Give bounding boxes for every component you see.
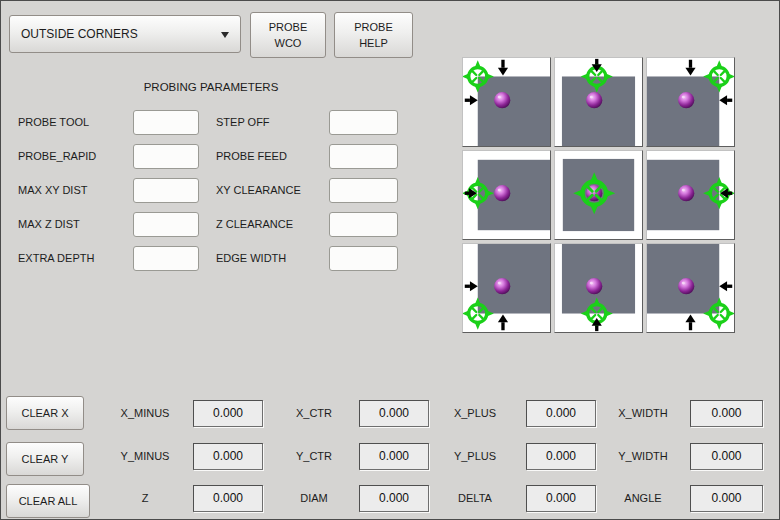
edge-width-input[interactable]: [329, 246, 398, 271]
x-width-label: X_WIDTH: [607, 400, 679, 427]
probe-tool-input[interactable]: [133, 110, 199, 135]
y-width-label: Y_WIDTH: [607, 443, 679, 470]
param-row-4: MAX Z DIST Z CLEARANCE: [1, 212, 431, 237]
probe-position-top-right-corner: [646, 57, 735, 147]
result-row-z: Z 0.000 DIAM 0.000 DELTA 0.000 ANGLE 0.0…: [1, 485, 780, 512]
step-off-label: STEP OFF: [216, 110, 270, 135]
workpiece-square: [647, 76, 719, 146]
x-plus-label: X_PLUS: [439, 400, 511, 427]
max-z-dist-input[interactable]: [133, 212, 199, 237]
step-off-input[interactable]: [329, 110, 398, 135]
probe-direction-arrow-icon: [719, 281, 732, 291]
probe-direction-arrow-icon: [592, 318, 602, 331]
diam-value: 0.000: [359, 485, 429, 512]
probe-feed-input[interactable]: [329, 144, 398, 169]
x-width-value: 0.000: [690, 400, 763, 427]
param-row-5: EXTRA DEPTH EDGE WIDTH: [1, 246, 431, 271]
probe-direction-arrow-icon: [465, 95, 478, 105]
extra-depth-input[interactable]: [133, 246, 199, 271]
probe-mode-dropdown-value: OUTSIDE CORNERS: [21, 27, 138, 41]
probe-screen-window: OUTSIDE CORNERS PROBE WCO PROBE HELP PRO…: [0, 0, 780, 520]
delta-value: 0.000: [526, 485, 596, 512]
probe-ball-icon: [678, 185, 694, 201]
edge-width-label: EDGE WIDTH: [216, 246, 286, 271]
diam-label: DIAM: [278, 485, 350, 512]
xy-clearance-label: XY CLEARANCE: [216, 178, 301, 203]
probe-direction-arrow-icon: [498, 60, 508, 76]
extra-depth-label: EXTRA DEPTH: [18, 246, 94, 271]
probe-position-bottom-right-corner: [646, 243, 735, 333]
workpiece-square: [478, 244, 550, 314]
y-ctr-label: Y_CTR: [278, 443, 350, 470]
y-plus-label: Y_PLUS: [439, 443, 511, 470]
probe-help-button-label-line2: HELP: [359, 35, 388, 52]
probe-help-button-label-line1: PROBE: [354, 19, 393, 36]
y-minus-value: 0.000: [193, 443, 263, 470]
max-xy-dist-label: MAX XY DIST: [18, 178, 87, 203]
workpiece-square: [478, 76, 550, 146]
y-minus-label: Y_MINUS: [109, 443, 181, 470]
param-row-1: PROBE TOOL STEP OFF: [1, 110, 431, 135]
probe-feed-label: PROBE FEED: [216, 144, 287, 169]
probe-wco-button-label-line2: WCO: [275, 35, 302, 52]
probe-direction-arrow-icon: [685, 314, 695, 330]
y-ctr-value: 0.000: [359, 443, 429, 470]
probe-mode-dropdown[interactable]: OUTSIDE CORNERS: [9, 15, 241, 53]
param-row-3: MAX XY DIST XY CLEARANCE: [1, 178, 431, 203]
x-ctr-value: 0.000: [359, 400, 429, 427]
probe-ball-icon: [678, 278, 694, 294]
y-width-value: 0.000: [690, 443, 763, 470]
probe-position-center: [554, 150, 643, 240]
xy-clearance-input[interactable]: [329, 178, 398, 203]
probe-direction-arrow-icon: [685, 60, 695, 76]
probe-direction-arrow-icon: [592, 59, 602, 72]
probe-ball-icon: [678, 92, 694, 108]
probe-rapid-label: PROBE_RAPID: [18, 144, 96, 169]
probe-wco-button-label-line1: PROBE: [269, 19, 308, 36]
probe-position-top-left-corner: [462, 57, 551, 147]
max-z-dist-label: MAX Z DIST: [18, 212, 80, 237]
chevron-down-icon: [221, 32, 229, 42]
y-plus-value: 0.000: [526, 443, 596, 470]
max-xy-dist-input[interactable]: [133, 178, 199, 203]
z-clearance-label: Z CLEARANCE: [216, 212, 293, 237]
result-row-y: Y_MINUS 0.000 Y_CTR 0.000 Y_PLUS 0.000 Y…: [1, 443, 780, 470]
delta-label: DELTA: [439, 485, 511, 512]
probe-position-grid: [462, 57, 735, 333]
x-ctr-label: X_CTR: [278, 400, 350, 427]
x-plus-value: 0.000: [526, 400, 596, 427]
result-row-x: X_MINUS 0.000 X_CTR 0.000 X_PLUS 0.000 X…: [1, 400, 780, 427]
probe-wco-button[interactable]: PROBE WCO: [250, 12, 326, 58]
z-label: Z: [109, 485, 181, 512]
probe-ball-icon: [586, 92, 602, 108]
z-value: 0.000: [193, 485, 263, 512]
probe-ball-icon: [586, 278, 602, 294]
probe-ball-icon: [494, 278, 510, 294]
probe-direction-arrow-icon: [465, 281, 478, 291]
probe-help-button[interactable]: PROBE HELP: [334, 12, 413, 58]
probe-position-top-edge: [554, 57, 643, 147]
probe-ball-icon: [494, 92, 510, 108]
probe-ball-icon: [494, 185, 510, 201]
probe-rapid-input[interactable]: [133, 144, 199, 169]
probe-direction-arrow-icon: [719, 95, 732, 105]
probe-direction-arrow-icon: [498, 314, 508, 330]
angle-value: 0.000: [690, 485, 763, 512]
probe-position-bottom-left-corner: [462, 243, 551, 333]
param-row-2: PROBE_RAPID PROBE FEED: [1, 144, 431, 169]
z-clearance-input[interactable]: [329, 212, 398, 237]
angle-label: ANGLE: [607, 485, 679, 512]
probe-position-right-edge: [646, 150, 735, 240]
x-minus-label: X_MINUS: [109, 400, 181, 427]
probing-parameters-title: PROBING PARAMETERS: [18, 81, 404, 93]
probe-position-bottom-edge: [554, 243, 643, 333]
probe-position-left-edge: [462, 150, 551, 240]
probe-tool-label: PROBE TOOL: [18, 110, 89, 135]
x-minus-value: 0.000: [193, 400, 263, 427]
